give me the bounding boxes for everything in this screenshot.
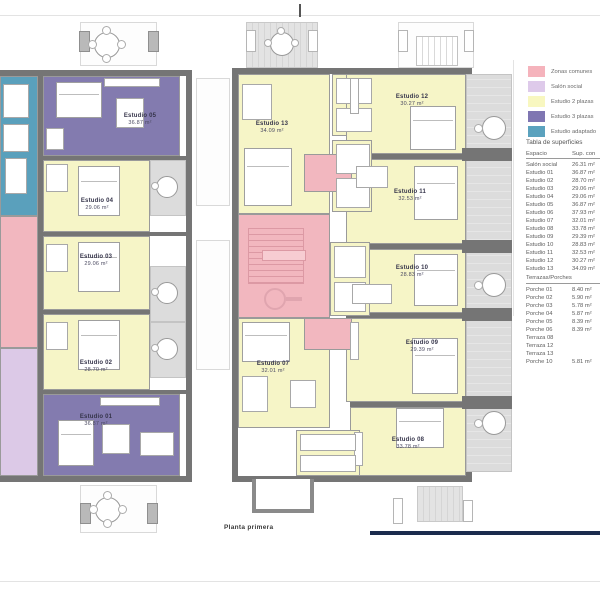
bed-icon <box>56 82 102 118</box>
room-label-estudio-05: Estudio 0536.87 m² <box>100 112 180 128</box>
room-label-estudio-01: Estudio 0136.87 m² <box>56 413 136 429</box>
wall <box>462 396 512 409</box>
legend-item: Estudio 2 plazas <box>528 94 600 109</box>
room-label-estudio-13: Estudio 1334.09 m² <box>232 120 312 136</box>
chair-icon <box>264 39 272 47</box>
cell-espacio: Porche 10 <box>526 358 572 366</box>
cell-espacio: Estudio 08 <box>526 225 572 233</box>
cell-sup: 36.87 m² <box>572 169 600 177</box>
room-label-estudio-08: Estudio 0833.78 m² <box>368 436 448 452</box>
surface-table-row: Porche 045.87 m² <box>526 310 600 318</box>
legend-label: Estudio 2 plazas <box>551 99 594 105</box>
cell-espacio: Estudio 12 <box>526 257 572 265</box>
legend-label: Estudio 3 plazas <box>551 114 594 120</box>
fixture <box>46 322 68 350</box>
legend-label: Salón social <box>551 84 582 90</box>
room-label-estudio-07: Estudio 0732.01 m² <box>233 360 313 376</box>
fixture <box>334 246 366 278</box>
surface-table: Tabla de superficies Espacio Sup. con Sa… <box>526 139 600 366</box>
surface-table-row: Estudio 0929.39 m² <box>526 233 600 241</box>
bed-icon <box>414 254 458 306</box>
planter <box>393 498 403 524</box>
site-boundary-line <box>513 60 514 316</box>
legend-swatch <box>528 96 545 107</box>
surface-table-row: Estudio 0833.78 m² <box>526 225 600 233</box>
table <box>290 380 316 408</box>
chair-icon <box>89 505 98 514</box>
surface-table-row: Terraza 12 <box>526 342 600 350</box>
chair-icon <box>117 40 126 49</box>
chair-icon <box>474 419 483 428</box>
cell-sup <box>572 334 600 342</box>
cell-espacio: Estudio 10 <box>526 241 572 249</box>
surface-table-row: Porche 025.90 m² <box>526 294 600 302</box>
planter <box>308 30 318 52</box>
elevator-icon <box>264 288 286 310</box>
fixture <box>46 128 64 150</box>
surface-table-row: Estudio 0637.93 m² <box>526 209 600 217</box>
cell-espacio: Estudio 11 <box>526 249 572 257</box>
cell-espacio: Porche 02 <box>526 294 572 302</box>
fixture <box>3 84 29 118</box>
exterior-stair <box>416 36 458 66</box>
chair-icon <box>291 39 299 47</box>
porch-table-icon <box>156 176 178 198</box>
surface-table-row: Porche 068.39 m² <box>526 326 600 334</box>
surface-table-body-terrazas: Porche 018.40 m²Porche 025.90 m²Porche 0… <box>526 286 600 366</box>
chair-icon <box>474 124 483 133</box>
balcony-outline <box>196 240 230 370</box>
legend-swatch <box>528 66 545 77</box>
surface-table-row: Estudio 0228.70 m² <box>526 177 600 185</box>
bed-icon <box>410 106 456 150</box>
fixture <box>46 164 68 192</box>
cell-espacio: Porche 04 <box>526 310 572 318</box>
cell-espacio: Porche 05 <box>526 318 572 326</box>
cell-espacio: Terraza 12 <box>526 342 572 350</box>
room-label-estudio-10: Estudio 1028.83 m² <box>372 264 452 280</box>
planter <box>246 30 256 52</box>
chair-icon <box>151 182 159 190</box>
surface-table-body: Salón social26.31 m²Estudio 0136.87 m²Es… <box>526 161 600 273</box>
surface-table-row: Estudio 0329.06 m² <box>526 185 600 193</box>
wall <box>462 240 512 253</box>
porch-table-icon <box>156 282 178 304</box>
surface-table-row: Terraza 08 <box>526 334 600 342</box>
cell-espacio: Porche 06 <box>526 326 572 334</box>
sofa <box>352 284 392 304</box>
bench <box>148 31 159 52</box>
cell-espacio: Salón social <box>526 161 572 169</box>
kitchen-counter <box>350 322 359 360</box>
chair-icon <box>102 26 111 35</box>
legend-item: Salón social <box>528 79 600 94</box>
chair-icon <box>277 27 285 35</box>
planter <box>398 30 408 52</box>
legend-item: Estudio 3 plazas <box>528 109 600 124</box>
legend-label: Zonas comunes <box>551 69 592 75</box>
cell-sup: 5.87 m² <box>572 310 600 318</box>
plan-caption: Planta primera <box>224 524 273 531</box>
surface-table-section: Terrazas/Porches <box>526 274 600 284</box>
zone-salon-social <box>0 348 38 476</box>
cell-sup: 28.83 m² <box>572 241 600 249</box>
cell-sup: 37.93 m² <box>572 209 600 217</box>
sofa <box>356 166 388 188</box>
surface-table-row: Porche 035.78 m² <box>526 302 600 310</box>
chair-icon <box>151 288 159 296</box>
cell-sup: 8.40 m² <box>572 286 600 294</box>
elevator-icon <box>286 297 302 301</box>
chair-icon <box>102 54 111 63</box>
room-label-estudio-09: Estudio 0929.39 m² <box>382 339 462 355</box>
legend-swatch <box>528 111 545 122</box>
wall <box>462 308 512 321</box>
section-marker <box>299 4 301 17</box>
cell-sup: 26.31 m² <box>572 161 600 169</box>
kitchen-counter <box>100 397 160 406</box>
surface-table-row: Estudio 0136.87 m² <box>526 169 600 177</box>
cell-sup: 34.09 m² <box>572 265 600 273</box>
cell-sup: 8.39 m² <box>572 326 600 334</box>
fixture <box>5 158 27 194</box>
terrace-table-icon <box>482 411 506 435</box>
chair-icon <box>103 519 112 528</box>
room-label-estudio-11: Estudio 1132.53 m² <box>370 188 450 204</box>
fixture <box>3 124 29 152</box>
surface-table-row: Estudio 1230.27 m² <box>526 257 600 265</box>
cell-sup <box>572 350 600 358</box>
cell-sup: 5.81 m² <box>572 358 600 366</box>
legend-swatch <box>528 126 545 137</box>
cell-espacio: Estudio 04 <box>526 193 572 201</box>
surface-table-row: Terraza 13 <box>526 350 600 358</box>
wall <box>462 148 512 161</box>
cell-sup: 36.87 m² <box>572 201 600 209</box>
sofa <box>242 84 272 120</box>
cell-espacio: Porche 01 <box>526 286 572 294</box>
stair-landing <box>262 250 306 261</box>
surface-table-row: Porche 105.81 m² <box>526 358 600 366</box>
cell-sup: 32.01 m² <box>572 217 600 225</box>
navy-accent-bar <box>370 531 600 535</box>
chair-icon <box>474 281 483 290</box>
terrace-table-icon <box>482 116 506 140</box>
cell-sup: 29.06 m² <box>572 185 600 193</box>
surface-table-row: Estudio 1334.09 m² <box>526 265 600 273</box>
cell-espacio: Estudio 03 <box>526 185 572 193</box>
chair-icon <box>88 40 97 49</box>
column-header-espacio: Espacio <box>526 151 572 157</box>
cell-sup: 8.39 m² <box>572 318 600 326</box>
cell-sup: 28.70 m² <box>572 177 600 185</box>
surface-table-row: Estudio 1028.83 m² <box>526 241 600 249</box>
cell-sup: 5.78 m² <box>572 302 600 310</box>
floor-plan-page: Estudio 0536.87 m² Estudio 0429.06 m² Es… <box>0 0 600 600</box>
cell-espacio: Porche 03 <box>526 302 572 310</box>
cell-sup: 29.39 m² <box>572 233 600 241</box>
cell-espacio: Estudio 05 <box>526 201 572 209</box>
surface-table-row: Estudio 1132.53 m² <box>526 249 600 257</box>
planter <box>464 30 474 52</box>
legend-swatch <box>528 81 545 92</box>
porch-table-icon <box>156 338 178 360</box>
surface-table-header: Espacio Sup. con <box>526 151 600 159</box>
cell-sup: 5.90 m² <box>572 294 600 302</box>
surface-table-title: Tabla de superficies <box>526 139 600 146</box>
legend-item: Zonas comunes <box>528 64 600 79</box>
chair-icon <box>103 491 112 500</box>
column-header-sup: Sup. con <box>572 151 600 157</box>
surface-table-row: Porche 058.39 m² <box>526 318 600 326</box>
room-label-estudio-03: Estudio 0329.06 m² <box>56 253 136 269</box>
chair-icon <box>151 344 159 352</box>
surface-table-row: Estudio 0536.87 m² <box>526 201 600 209</box>
surface-table-row: Estudio 0429.06 m² <box>526 193 600 201</box>
planter <box>463 500 473 522</box>
page-border-bottom <box>0 581 600 582</box>
bed-icon <box>244 148 292 206</box>
balcony-outline <box>196 78 230 206</box>
room-label-estudio-12: Estudio 1230.27 m² <box>372 93 452 109</box>
zone-zonas-comunes <box>304 318 352 350</box>
cell-espacio: Estudio 07 <box>526 217 572 225</box>
sofa <box>140 432 174 456</box>
terrace-table-icon <box>482 273 506 297</box>
cell-sup: 29.06 m² <box>572 193 600 201</box>
surface-table-row: Salón social26.31 m² <box>526 161 600 169</box>
cell-espacio: Estudio 13 <box>526 265 572 273</box>
cell-espacio: Terraza 13 <box>526 350 572 358</box>
cell-espacio: Estudio 01 <box>526 169 572 177</box>
cell-sup: 32.53 m² <box>572 249 600 257</box>
kitchen-counter <box>350 78 359 114</box>
cell-sup <box>572 342 600 350</box>
chair-icon <box>118 505 127 514</box>
bench <box>147 503 158 524</box>
cell-espacio: Terraza 08 <box>526 334 572 342</box>
kitchen-counter <box>104 78 160 87</box>
terrace-hatched <box>417 486 463 522</box>
entrance-vestibule <box>252 479 314 513</box>
legend: Zonas comunesSalón socialEstudio 2 plaza… <box>528 64 600 139</box>
legend-item: Estudio adaptado <box>528 124 600 139</box>
cell-sup: 33.78 m² <box>572 225 600 233</box>
legend-label: Estudio adaptado <box>551 129 596 135</box>
surface-table-row: Estudio 0732.01 m² <box>526 217 600 225</box>
bed-icon <box>242 322 290 362</box>
cell-sup: 30.27 m² <box>572 257 600 265</box>
fixture <box>300 434 356 451</box>
room-label-estudio-04: Estudio 0429.06 m² <box>57 197 137 213</box>
cell-espacio: Estudio 02 <box>526 177 572 185</box>
sofa <box>242 376 268 412</box>
surface-table-row: Porche 018.40 m² <box>526 286 600 294</box>
room-label-estudio-02: Estudio 0228.70 m² <box>56 359 136 375</box>
zone-zonas-comunes <box>0 216 38 348</box>
fixture <box>300 455 356 472</box>
cell-espacio: Estudio 06 <box>526 209 572 217</box>
cell-espacio: Estudio 09 <box>526 233 572 241</box>
